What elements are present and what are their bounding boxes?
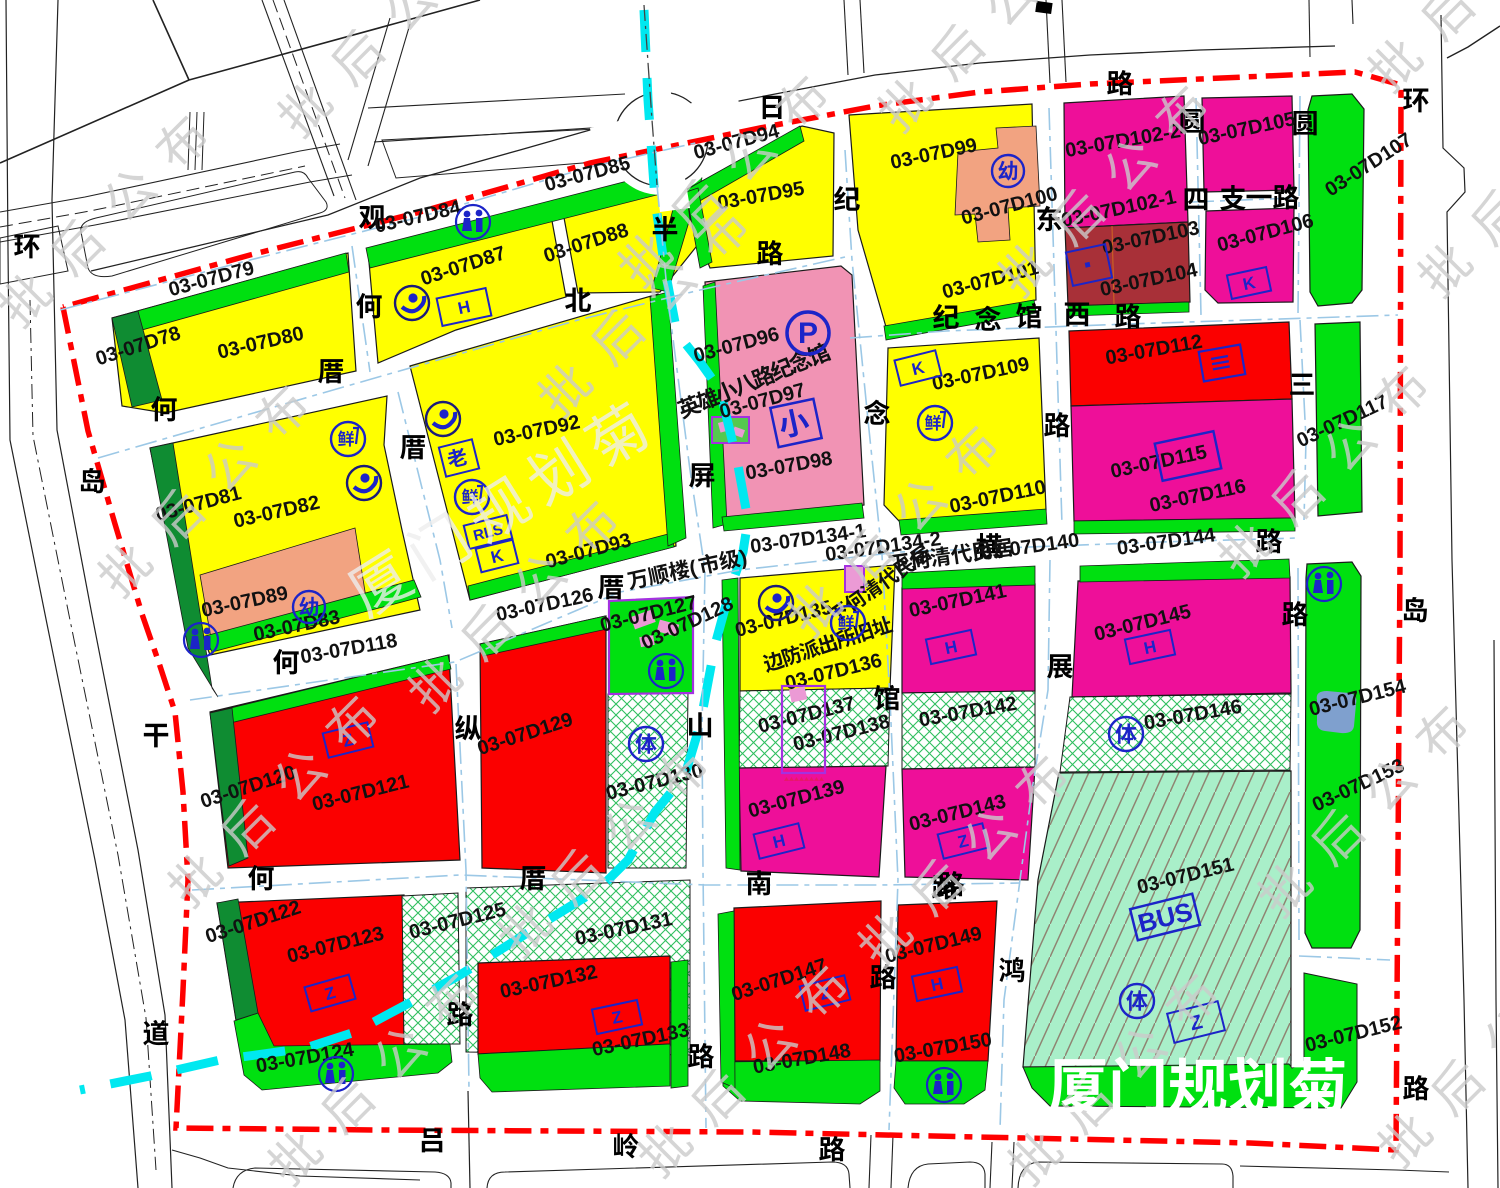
svg-text:P: P bbox=[798, 317, 818, 350]
